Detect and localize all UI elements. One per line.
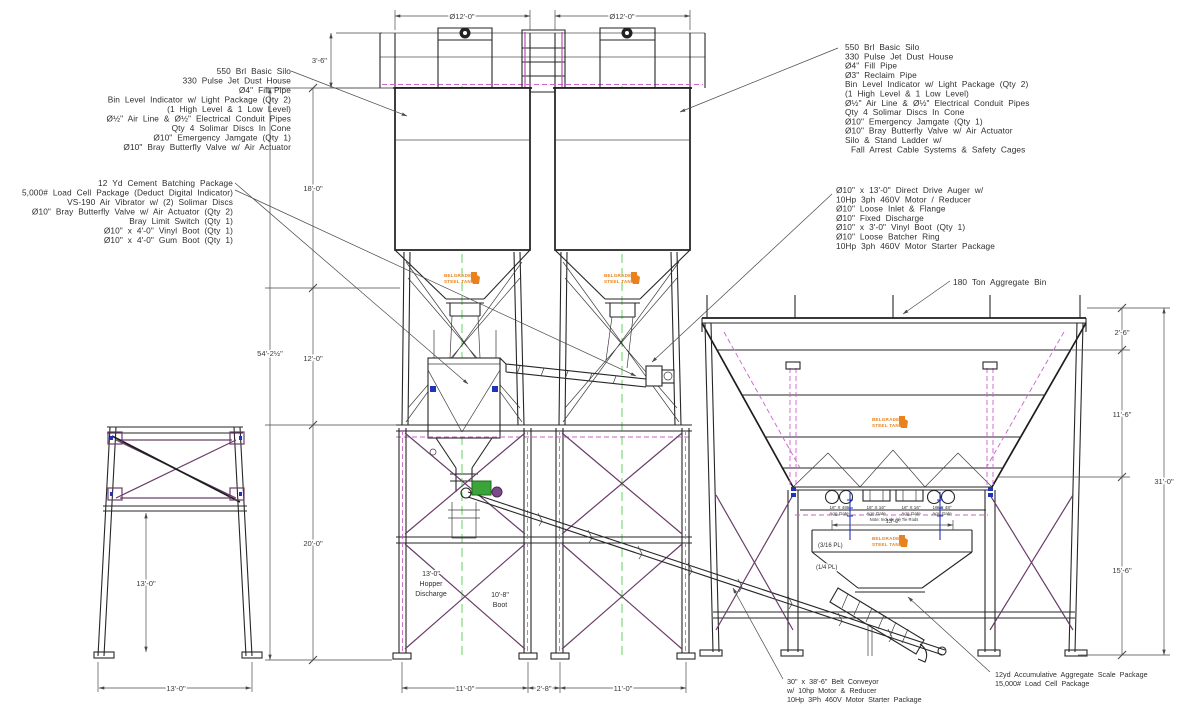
- notes-mid-left: 12 Yd Cement Batching Package 5,000# Loa…: [22, 178, 233, 245]
- dim-bin-hopper: 11'-6": [1113, 410, 1132, 419]
- dim-bin-overall: 31'-0": [1154, 477, 1174, 486]
- label-gate-size: 16" X 16": [866, 505, 885, 510]
- note-line: 10Hp 3Ph 460V Motor Starter Package: [787, 695, 922, 704]
- notes-belt-conveyor: 30" x 38'-6" Belt Conveyor w/ 10hp Motor…: [786, 677, 922, 704]
- dim-bay-center: 2'-8": [536, 684, 551, 693]
- label-gate-size: 16" X 16": [901, 505, 920, 510]
- logo-text: STEEL TANK: [872, 423, 903, 428]
- label-hopper-discharge: 13'-0": [422, 571, 440, 578]
- center-fill-structure: [522, 30, 565, 92]
- note-line: 12yd Accumulative Aggregate Scale Packag…: [995, 670, 1148, 679]
- notes-scale-package: 12yd Accumulative Aggregate Scale Packag…: [995, 670, 1148, 688]
- label-gate-size: 16" X 48": [829, 505, 848, 510]
- label-gate-size: 16" X 48": [932, 505, 951, 510]
- note-line: 550 Brl Basic Silo: [217, 66, 292, 76]
- note-line: Ø10" x 4'-0" Vinyl Boot (Qty 1): [104, 226, 233, 236]
- note-line: Ø½" Air Line & Ø½" Electrical Conduit Pi…: [107, 114, 291, 124]
- note-line: Ø10" Bray Butterfly Valve w/ Air Actuato…: [32, 207, 233, 217]
- belgrade-logo-scale-hopper: BELGRADE STEEL TANK: [872, 535, 908, 547]
- label-aggregate-bin: 180 Ton Aggregate Bin: [953, 277, 1047, 287]
- note-line: VS-190 Air Vibrator w/ (2) Solimar Discs: [67, 197, 233, 207]
- batch-plant-elevation-svg: Ø12'-0" Ø12'-0" 3'-6" 18'-0" 12'-0" 20'-…: [0, 0, 1200, 724]
- belgrade-logo-silo-left: BELGRADE STEEL TANK: [444, 272, 480, 284]
- label-boot: Boot: [493, 602, 507, 609]
- belgrade-logo-silo-right: BELGRADE STEEL TANK: [604, 272, 640, 284]
- dust-house-right: [600, 28, 655, 89]
- aggregate-gates: [824, 490, 956, 504]
- note-line: 330 Pulse Jet Dust House: [183, 76, 292, 86]
- note-line: w/ 10hp Motor & Reducer: [786, 686, 877, 695]
- dim-stand-width: 13'-0": [166, 684, 186, 693]
- logo-text: BELGRADE: [872, 536, 899, 541]
- dim-overall-height: 54'-2½": [257, 349, 283, 358]
- label-gate: Agg Gate: [866, 511, 886, 516]
- dim-silo-body: 18'-0": [303, 184, 323, 193]
- note-line: Ø10" x 4'-0" Gum Boot (Qty 1): [104, 235, 233, 245]
- dim-bin-top: 2'-6": [1114, 328, 1129, 337]
- note-line: Bin Level Indicator w/ Light Package (Qt…: [108, 95, 291, 105]
- note-line: Ø10" Emergency Jamgate (Qty 1): [153, 133, 291, 143]
- plate-labels: (3/16 PL) (1/4 PL): [816, 543, 843, 571]
- note-line: 10Hp 3ph 460V Motor Starter Package: [836, 241, 995, 251]
- dim-tower-height: 20'-0": [303, 539, 323, 548]
- note-line: Fall Arrest Cable Systems & Safety Cages: [851, 144, 1025, 154]
- label-gate: Agg Gate: [829, 511, 849, 516]
- dim-bin-legs: 15'-6": [1112, 566, 1132, 575]
- note-line: 15,000# Load Cell Package: [995, 679, 1089, 688]
- note-line: 5,000# Load Cell Package (Deduct Digital…: [22, 188, 233, 198]
- dim-rail-height: 3'-6": [312, 56, 327, 65]
- logo-text: BELGRADE: [604, 273, 631, 278]
- notes-mid-right: Ø10" x 13'-0" Direct Drive Auger w/ 10Hp…: [836, 185, 995, 251]
- label-hopper-discharge: Hopper: [420, 581, 444, 588]
- notes-top-right: 550 Brl Basic Silo 330 Pulse Jet Dust Ho…: [845, 42, 1029, 154]
- dim-cone-section: 12'-0": [303, 354, 323, 363]
- logo-text: STEEL TANK: [444, 279, 475, 284]
- notes-top-left: 550 Brl Basic Silo 330 Pulse Jet Dust Ho…: [107, 66, 292, 152]
- dust-house-left: [438, 28, 492, 89]
- logo-text: STEEL TANK: [604, 279, 635, 284]
- cement-batcher: [428, 358, 500, 538]
- dim-bay-left: 11'-0": [456, 684, 475, 693]
- dim-silo-dia-left: Ø12'-0": [449, 12, 475, 21]
- belgrade-logo-bin: BELGRADE STEEL TANK: [872, 416, 908, 428]
- left-stand: [94, 427, 262, 658]
- label-gate: Agg Gate: [901, 511, 921, 516]
- note-line: (1 High Level & 1 Low Level): [167, 104, 291, 114]
- note-line: 30" x 38'-6" Belt Conveyor: [787, 677, 879, 686]
- support-tower: [393, 425, 695, 659]
- gate-labels: 16" X 48" Agg Gate 16" X 16" Agg Gate No…: [829, 505, 952, 522]
- note-line: Qty 4 Solimar Discs In Cone: [172, 123, 292, 133]
- label-gate: Agg Gate: [932, 511, 952, 516]
- note-line: 12 Yd Cement Batching Package: [98, 178, 233, 188]
- logo-text: BELGRADE: [872, 417, 899, 422]
- label-gate-note: Note: Include (1) Tie Rods: [870, 517, 919, 522]
- dim-stand-height: 13'-0": [136, 579, 156, 588]
- aggregate-bin: [700, 295, 1087, 656]
- logo-text: STEEL TANK: [872, 542, 903, 547]
- label-plate-lower: (1/4 PL): [816, 565, 837, 571]
- drawing-sheet: Ø12'-0" Ø12'-0" 3'-6" 18'-0" 12'-0" 20'-…: [0, 0, 1200, 724]
- label-hopper-discharge: Discharge: [415, 591, 447, 598]
- dim-silo-dia-right: Ø12'-0": [609, 12, 635, 21]
- label-plate-upper: (3/16 PL): [818, 543, 843, 549]
- dim-bay-right: 11'-0": [614, 684, 633, 693]
- note-line: Ø10" Bray Butterfly Valve w/ Air Actuato…: [123, 142, 291, 152]
- note-line: Ø4" Fill Pipe: [239, 85, 291, 95]
- label-boot: 10'-8": [491, 592, 509, 599]
- note-line: Bray Limit Switch (Qty 1): [129, 216, 233, 226]
- logo-text: BELGRADE: [444, 273, 471, 278]
- silo-roof-railing: [380, 33, 705, 88]
- scale-conveyor: [830, 588, 927, 662]
